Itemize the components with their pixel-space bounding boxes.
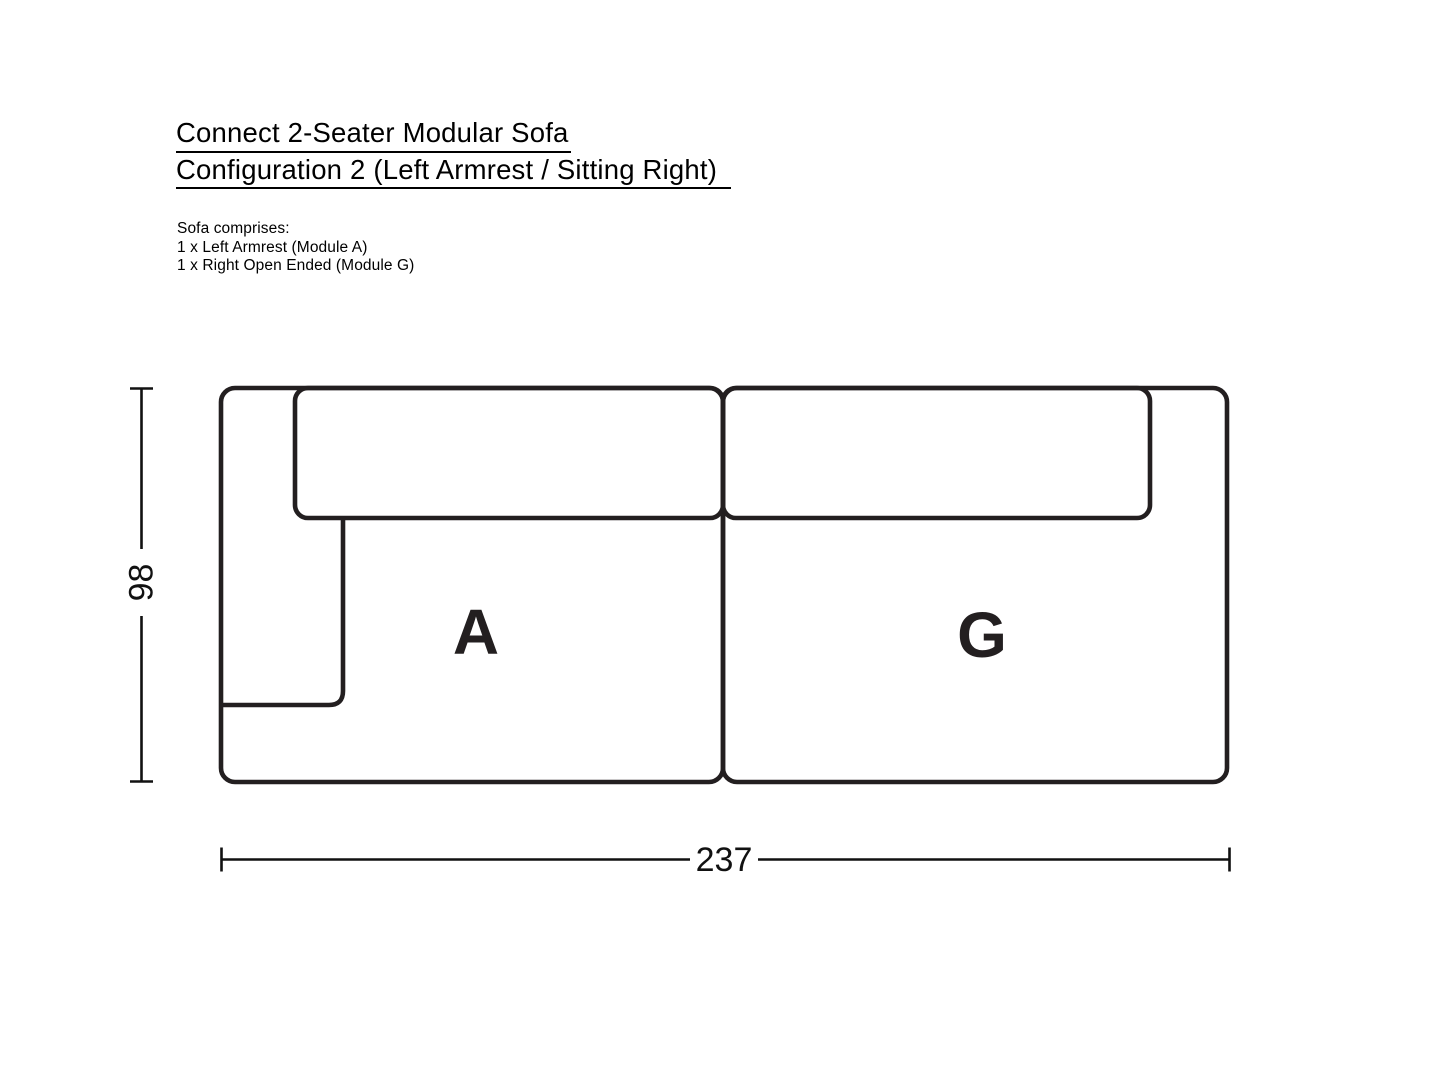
module-labels: A G (453, 596, 1007, 671)
module-g-backrest-cushion (723, 388, 1150, 518)
module-a-armrest-edge (221, 517, 343, 705)
height-dim-value: 98 (123, 564, 161, 602)
sofa-top-view-diagram: A G 98 237 (0, 0, 1445, 1087)
module-g-label: G (957, 599, 1007, 671)
width-dim-value: 237 (696, 841, 753, 879)
module-a-label: A (453, 596, 499, 668)
product-diagram-page: Connect 2-Seater Modular Sofa Configurat… (0, 0, 1445, 1087)
dimension-labels: 98 237 (123, 564, 753, 879)
sofa-outlines (221, 388, 1227, 782)
module-a-backrest-cushion (295, 388, 723, 518)
